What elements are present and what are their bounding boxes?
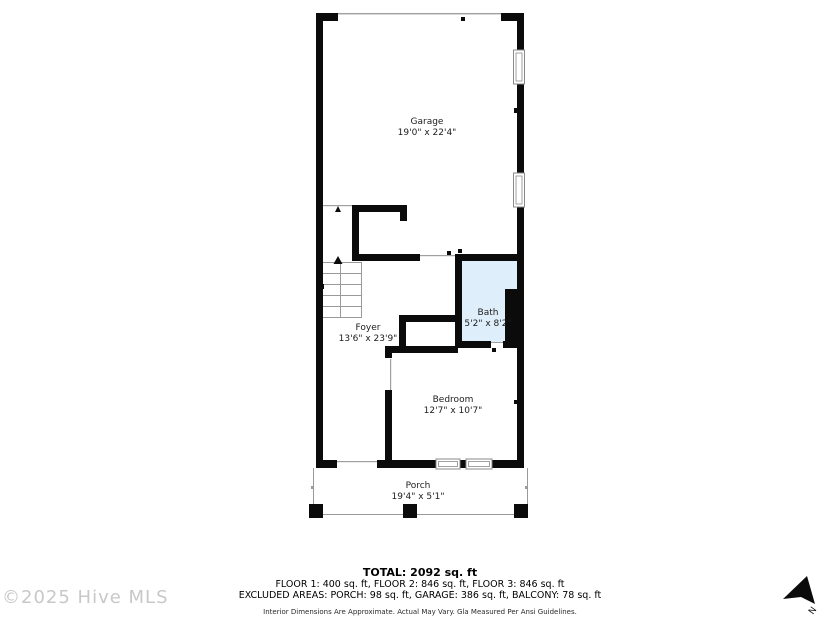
porch-post-right [514,504,528,518]
wall-bath-left [455,254,462,348]
wall-bedroom-top [385,346,458,353]
wall-top-left-stub [316,13,338,21]
wall-right [517,207,524,468]
porch-post-center [403,504,417,518]
room-label-porch: Porch 19'4" x 5'1" [392,481,445,503]
room-name: Bedroom [424,395,483,406]
wall-hall-bottom [352,254,420,261]
porch-post-left [309,504,323,518]
room-dimensions: 19'4" x 5'1" [392,492,445,503]
wall-left [316,13,323,468]
room-name: Foyer [339,323,398,334]
floor-plan-drawing: N [0,0,840,630]
window-bedroom-left [436,459,460,469]
stairs-up-arrow [334,256,343,264]
room-label-foyer: Foyer 13'6" x 23'9" [339,323,398,345]
walls [316,13,524,468]
bedroom-door-opening [390,359,391,390]
wall-bottom [491,460,523,468]
wall-bedroom-left [385,390,392,468]
wall-bath-bottom [455,341,491,348]
garage-foyer-opening [323,205,352,206]
room-dimensions: 13'6" x 23'9" [339,334,398,345]
wall-closet-top [352,205,407,212]
wall-hallway-top [399,315,459,322]
room-dimensions: 19'0" x 22'4" [398,128,457,139]
window-bedroom-right [466,459,492,469]
wall-right [517,13,524,50]
front-door-opening [337,461,377,462]
disclaimer: Interior Dimensions Are Approximate. Act… [0,608,840,617]
wall-hallway-stub [399,315,406,348]
room-name: Bath [464,308,511,319]
bath-door-opening [491,342,503,343]
wall-right [517,84,524,173]
room-name: Porch [392,481,445,492]
room-label-bath: Bath 5'2" x 8'2" [464,308,511,330]
wall-closet-left [352,205,359,257]
floor-plan-page: N Garage 19'0" x 22'4" Foyer 13'6" x 23'… [0,0,840,630]
hall-door-opening [420,255,455,256]
wall-bedroom-left [385,346,392,358]
stairs-landing-arrow [335,206,341,212]
wall-bath-top [455,254,524,261]
watermark: ©2025 Hive MLS [2,587,169,608]
room-dimensions: 12'7" x 10'7" [424,406,483,417]
room-label-garage: Garage 19'0" x 22'4" [398,117,457,139]
window-garage-right-lower [514,173,525,207]
wall-closet-stub [400,212,407,221]
window-garage-right-upper [514,50,525,84]
wall-bottom [316,460,337,468]
total-area: TOTAL: 2092 sq. ft [0,567,840,579]
room-dimensions: 5'2" x 8'2" [464,319,511,330]
room-name: Garage [398,117,457,128]
room-label-bedroom: Bedroom 12'7" x 10'7" [424,395,483,417]
wall-bottom [460,460,466,468]
garage-door-opening [330,13,510,14]
